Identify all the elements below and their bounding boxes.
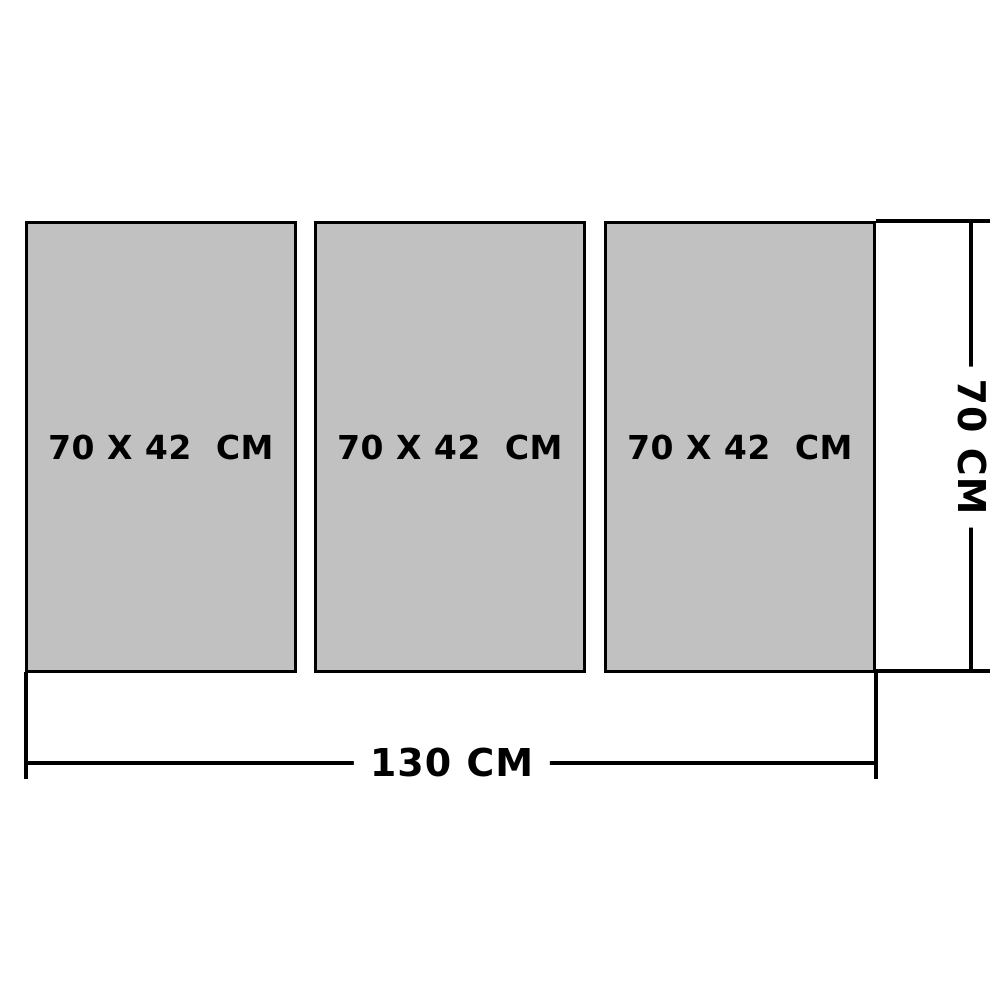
- panel-left-size-label: 70 X 42 СМ: [48, 428, 274, 467]
- panel-right-size-label: 70 X 42 СМ: [627, 428, 853, 467]
- panel-left: 70 X 42 СМ: [25, 221, 297, 673]
- panel-center-size-label: 70 X 42 СМ: [337, 428, 563, 467]
- height-dimension-label: 70 СМ: [947, 367, 995, 528]
- size-diagram: 70 X 42 СМ 70 X 42 СМ 70 X 42 СМ 70 СМ 1…: [0, 0, 1000, 1000]
- panel-right: 70 X 42 СМ: [604, 221, 876, 673]
- width-dimension-label: 130 СМ: [354, 739, 550, 787]
- panel-center: 70 X 42 СМ: [314, 221, 586, 673]
